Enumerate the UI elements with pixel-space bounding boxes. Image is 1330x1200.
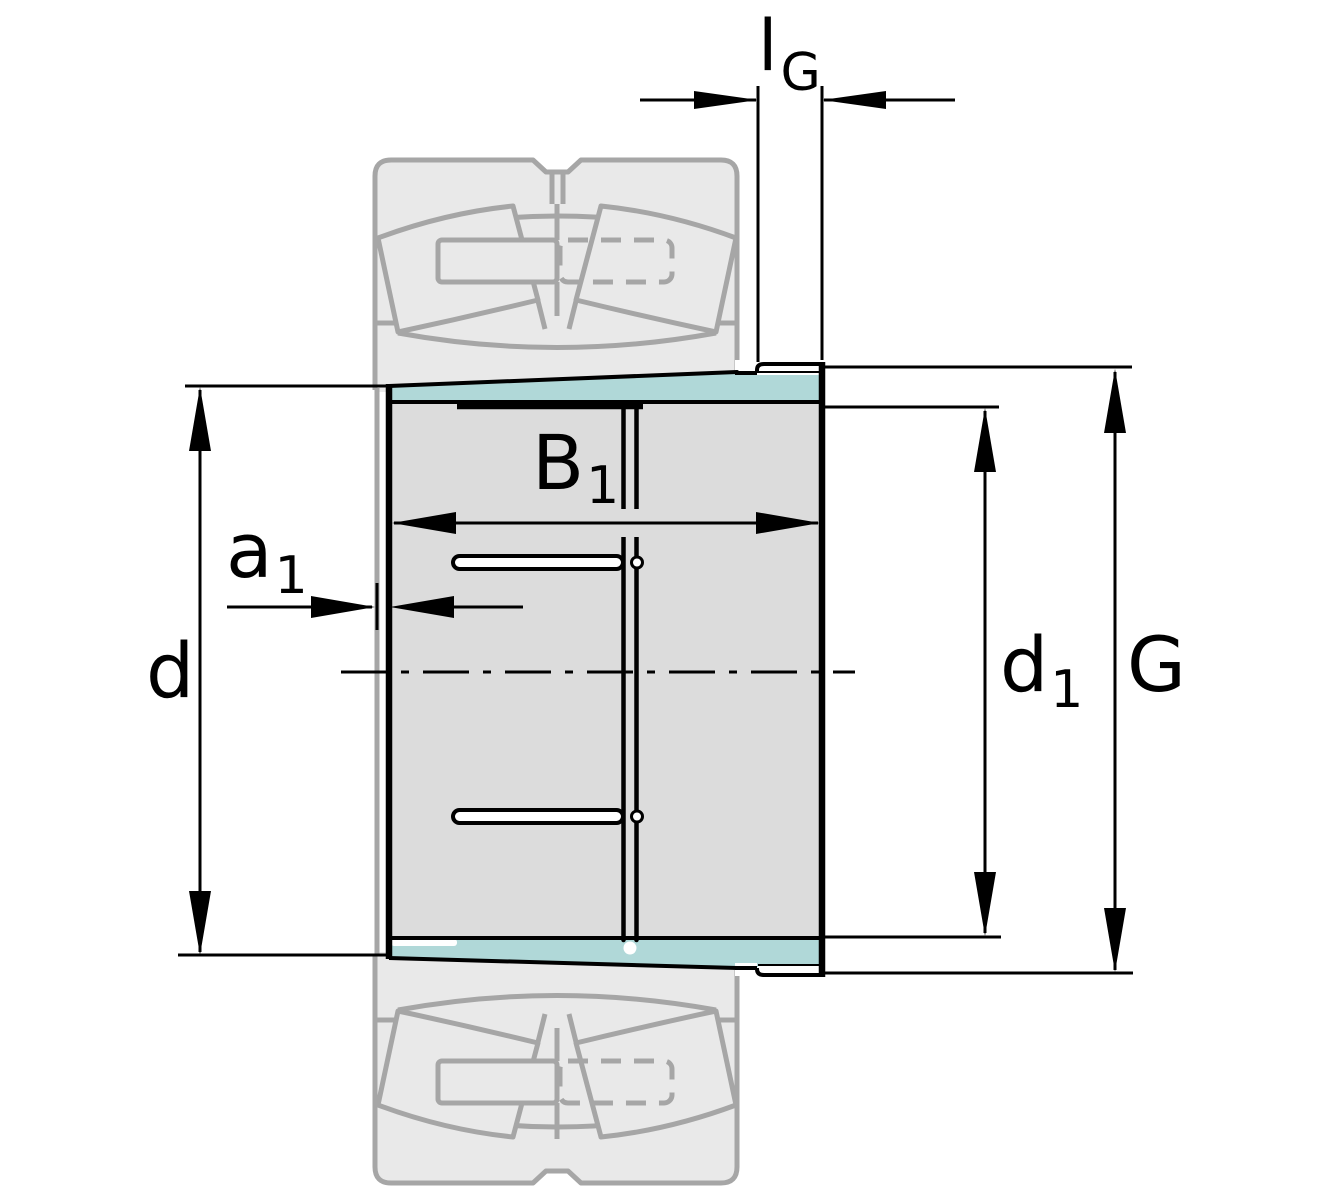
arrowhead-up: [1104, 369, 1126, 433]
groove-hole-lower: [632, 811, 643, 822]
arrowhead-up: [189, 387, 211, 451]
thread-band-top: [758, 366, 820, 371]
technical-drawing: lG B1 a1 d d1 G: [0, 0, 1330, 1200]
dim-label-lG: lG: [758, 5, 821, 103]
adapter-sleeve: [389, 360, 822, 977]
dim-label-d1: d1: [1000, 620, 1083, 720]
cage-section: [438, 240, 557, 282]
dim-label-d: d: [146, 626, 194, 715]
arrowhead-left: [822, 91, 886, 109]
dim-label-G: G: [1127, 620, 1186, 709]
bearing-ghost-bottom: [375, 952, 737, 1183]
sleeve-groove-upper: [453, 556, 623, 569]
arrowhead-down: [1104, 908, 1126, 972]
thread-band-bottom: [758, 966, 820, 972]
cage-section: [438, 1061, 557, 1103]
dim-label-a1: a1: [226, 506, 308, 606]
thread-undercut-top: [735, 360, 757, 372]
arrowhead-down: [974, 872, 996, 936]
bearing-ghost-top: [375, 160, 737, 392]
runout-gap-bottom: [391, 939, 457, 946]
groove-hole-upper: [632, 557, 643, 568]
arrowhead-down: [189, 891, 211, 955]
dimension-d1: d1: [824, 407, 1083, 937]
slit-notch-bottom: [624, 942, 637, 955]
arrowhead-right: [311, 596, 375, 618]
arrowhead-right: [694, 91, 758, 109]
sleeve-groove-lower: [453, 810, 623, 823]
arrowhead-up: [974, 408, 996, 472]
extension-lines: [758, 86, 822, 362]
drawing-canvas: lG B1 a1 d d1 G: [0, 0, 1330, 1200]
